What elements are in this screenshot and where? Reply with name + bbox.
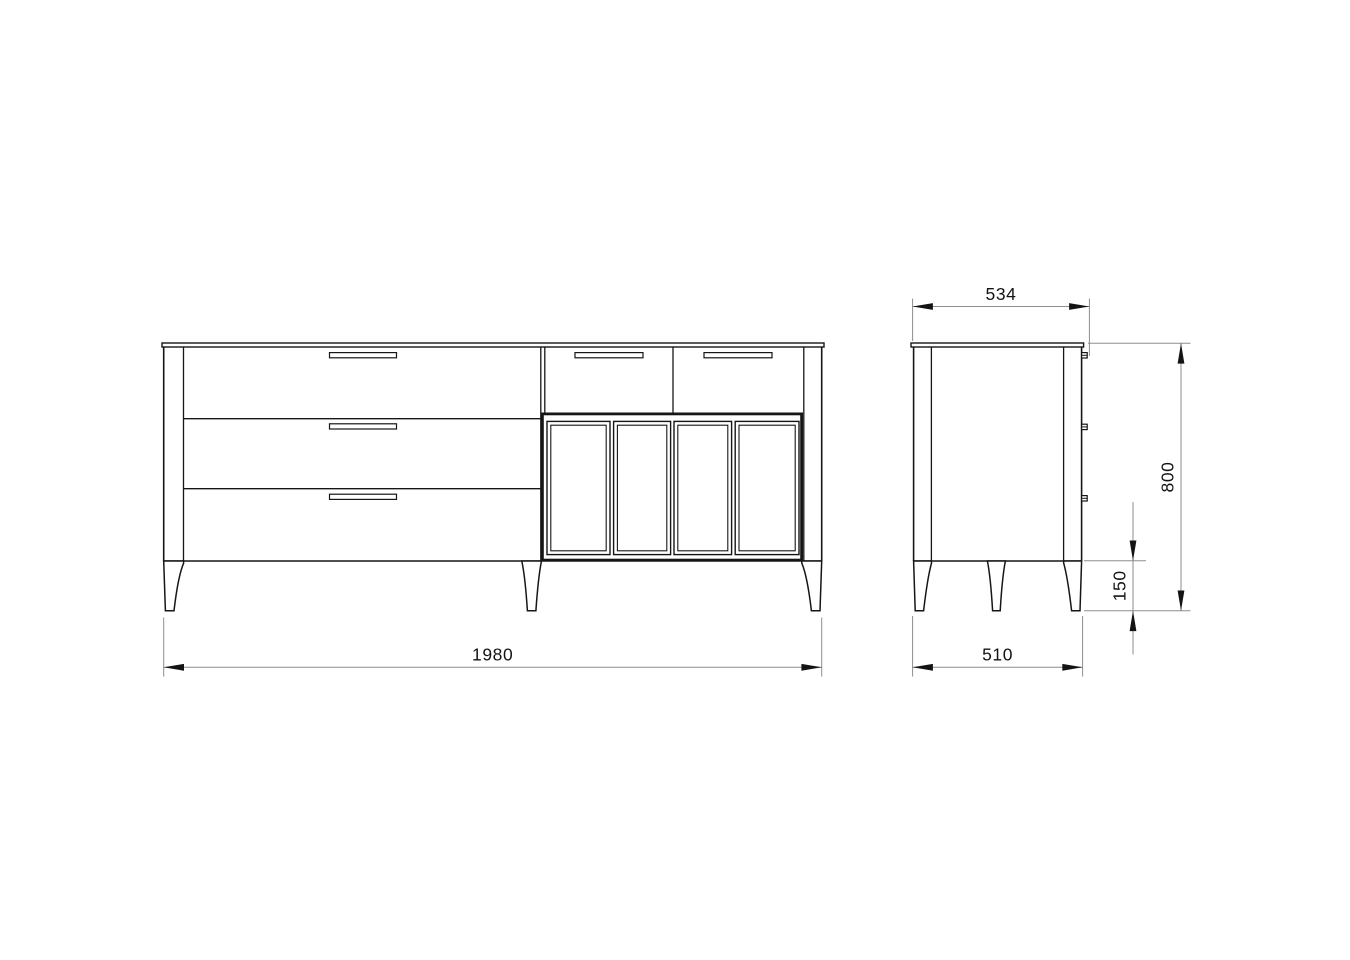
- dimension-leg-height-label: 150: [1110, 570, 1130, 601]
- dimension-depth-bottom-label: 510: [982, 645, 1013, 665]
- front-leg-left: [164, 561, 184, 611]
- technical-drawing: 1980 534 800 150: [0, 0, 1350, 960]
- front-leg-middle: [522, 561, 542, 611]
- arrowhead: [1130, 541, 1137, 561]
- door-panels: [547, 421, 799, 554]
- dimension-width-label: 1980: [472, 645, 513, 665]
- arrowhead: [913, 664, 933, 671]
- drawer-handle: [330, 353, 397, 358]
- arrowhead: [801, 664, 821, 671]
- arrowhead: [164, 664, 184, 671]
- door-panel-inner: [551, 425, 606, 551]
- dimension-depth-top-label: 534: [986, 284, 1017, 304]
- side-view: [911, 343, 1087, 611]
- side-leg-back: [1064, 561, 1082, 611]
- front-view: [162, 343, 824, 611]
- dimension-depth-bottom: 510: [913, 616, 1083, 677]
- door-panel-inner: [739, 425, 795, 551]
- arrowhead: [1130, 611, 1137, 631]
- door-panel-inner: [617, 425, 666, 551]
- arrowhead: [1178, 343, 1185, 363]
- drawer-handle: [330, 424, 397, 429]
- side-top-panel: [911, 343, 1084, 347]
- door-panel: [614, 421, 671, 554]
- drawer-handle: [575, 353, 643, 358]
- door-panel-inner: [678, 425, 728, 551]
- side-leg-middle: [987, 561, 1005, 611]
- drawer-handle: [330, 494, 397, 499]
- handle-profile: [1082, 353, 1088, 501]
- drawing-canvas: 1980 534 800 150: [0, 0, 1350, 960]
- door-panel: [547, 421, 610, 554]
- dimension-width: 1980: [164, 618, 822, 677]
- side-leg-front: [914, 561, 932, 611]
- door-panel: [735, 421, 799, 554]
- arrowhead: [1178, 591, 1185, 611]
- door-frame: [542, 414, 801, 560]
- arrowhead: [1069, 303, 1089, 310]
- dimension-leg-height: 150: [1084, 502, 1146, 655]
- front-leg-right: [802, 561, 822, 611]
- arrowhead: [1062, 664, 1082, 671]
- door-panel: [674, 421, 732, 554]
- arrowhead: [913, 303, 933, 310]
- dimension-height-label: 800: [1158, 462, 1178, 493]
- dimension-height: 800: [1084, 343, 1191, 611]
- drawer-handle: [704, 353, 772, 358]
- front-top-panel: [162, 343, 824, 347]
